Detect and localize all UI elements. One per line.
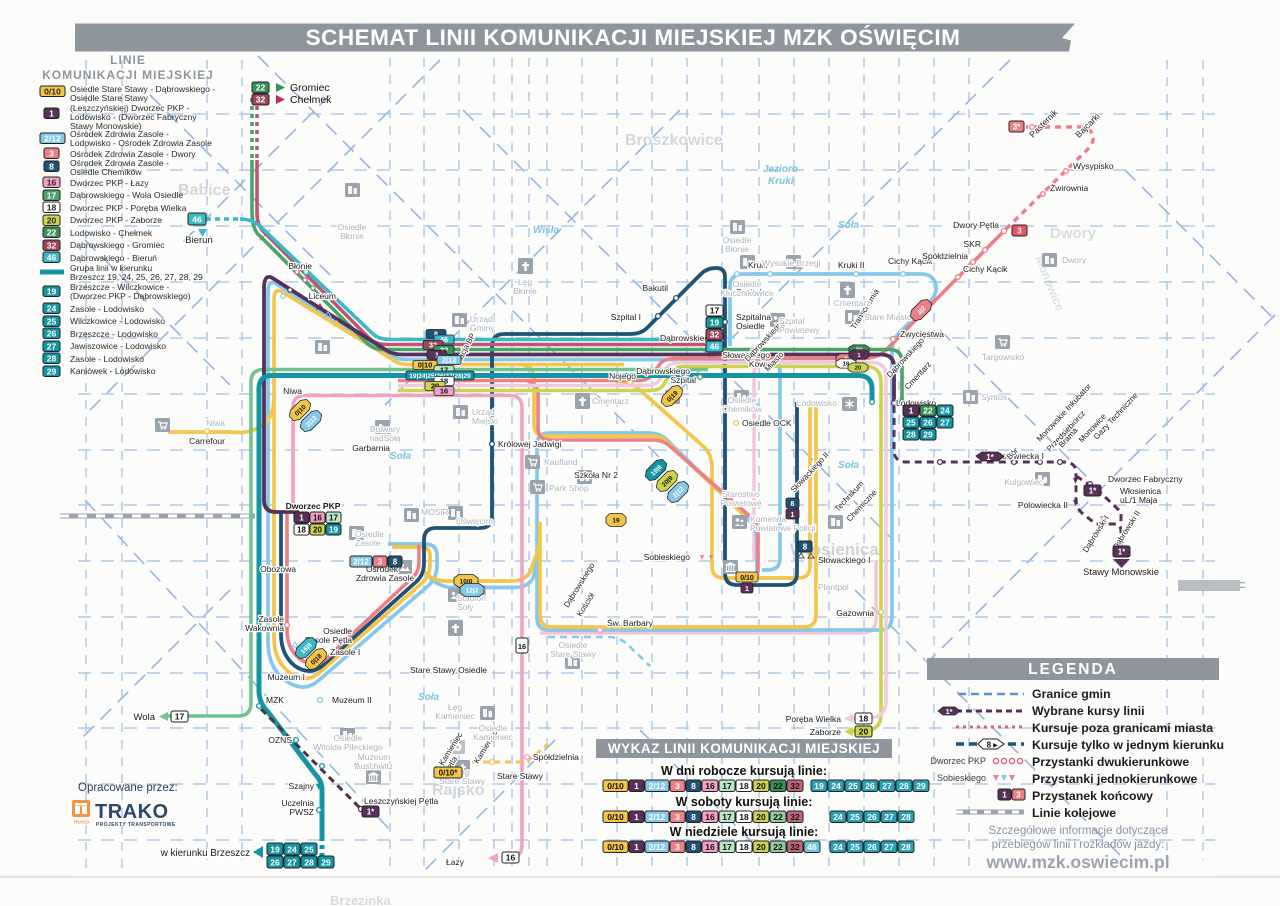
svg-text:Szajny: Szajny: [288, 781, 314, 791]
svg-text:Wysypisko: Wysypisko: [1073, 161, 1114, 171]
svg-text:Stawy Monowskie: Stawy Monowskie: [1083, 567, 1159, 578]
svg-text:19: 19: [47, 287, 57, 297]
svg-text:Dwory Pętla: Dwory Pętla: [953, 220, 999, 230]
svg-text:Dworzec PKP - Łazy: Dworzec PKP - Łazy: [70, 178, 149, 188]
svg-text:Bieruń: Bieruń: [185, 235, 212, 246]
svg-text:Wybrane kursy linii: Wybrane kursy linii: [1032, 704, 1145, 718]
svg-text:18: 18: [859, 714, 869, 724]
svg-text:www.mzk.oswiecim.pl: www.mzk.oswiecim.pl: [985, 852, 1169, 872]
svg-text:W niedziele kursują linie:: W niedziele kursują linie:: [670, 825, 819, 839]
svg-text:Liceum: Liceum: [309, 291, 336, 301]
svg-text:Jawiszowice - Lodowisko: Jawiszowice - Lodowisko: [70, 341, 166, 351]
svg-text:18: 18: [739, 781, 749, 791]
svg-text:OZNS: OZNS: [268, 735, 292, 745]
svg-text:0/10: 0/10: [607, 842, 624, 852]
svg-text:Szczegółowe informacje dotyczą: Szczegółowe informacje dotyczące: [989, 825, 1168, 837]
svg-text:Niwa: Niwa: [283, 386, 302, 396]
svg-text:Kamieniec: Kamieniec: [435, 711, 475, 721]
svg-text:Kruki: Kruki: [768, 176, 794, 187]
svg-text:18: 18: [47, 203, 57, 213]
svg-text:Targowisko: Targowisko: [982, 352, 1025, 362]
svg-text:Sobieskiego: Sobieskiego: [644, 552, 691, 562]
svg-text:8: 8: [393, 558, 398, 567]
svg-text:2/12: 2/12: [649, 781, 666, 791]
svg-text:Zwycięstwa: Zwycięstwa: [900, 329, 944, 339]
svg-text:0/10: 0/10: [607, 781, 624, 791]
svg-text:Dworzec Fabryczny: Dworzec Fabryczny: [1108, 474, 1183, 484]
svg-text:16: 16: [313, 514, 322, 523]
svg-text:16: 16: [506, 853, 516, 863]
svg-text:Auschwitz: Auschwitz: [355, 761, 393, 771]
svg-text:17: 17: [722, 781, 732, 791]
svg-text:32: 32: [710, 330, 720, 340]
svg-text:29: 29: [923, 430, 933, 440]
svg-text:Przystanki jednokierunkowe: Przystanki jednokierunkowe: [1032, 772, 1198, 786]
svg-text:Kaniówek - Lodowisko: Kaniówek - Lodowisko: [70, 366, 156, 376]
svg-text:26: 26: [867, 842, 877, 852]
svg-text:0/10: 0/10: [44, 87, 61, 97]
svg-text:2|12: 2|12: [442, 356, 457, 365]
svg-text:2/12: 2/12: [353, 558, 369, 567]
svg-text:Gromiec: Gromiec: [290, 82, 330, 94]
svg-text:0|10: 0|10: [418, 361, 433, 370]
svg-text:20: 20: [47, 216, 57, 226]
svg-text:Powiatowe: Powiatowe: [720, 498, 761, 508]
svg-text:1*: 1*: [1089, 487, 1097, 496]
svg-text:uL/1 Maja: uL/1 Maja: [1120, 495, 1158, 505]
svg-text:19: 19: [329, 526, 338, 535]
svg-text:46: 46: [47, 253, 57, 263]
svg-text:Soła: Soła: [418, 692, 440, 703]
svg-text:Polowiecka II: Polowiecka II: [1018, 500, 1068, 510]
svg-text:8: 8: [803, 543, 808, 552]
svg-text:Powiatewy: Powiatewy: [779, 325, 820, 335]
svg-text:8: 8: [691, 842, 696, 852]
svg-text:Plantpol: Plantpol: [818, 582, 849, 592]
svg-text:2/12: 2/12: [649, 842, 666, 852]
svg-text:8: 8: [691, 781, 696, 791]
svg-text:1: 1: [634, 812, 639, 822]
svg-text:25: 25: [906, 418, 916, 428]
svg-text:3: 3: [675, 812, 680, 822]
svg-text:27: 27: [940, 418, 950, 428]
svg-text:28: 28: [899, 781, 909, 791]
svg-text:1*: 1*: [986, 453, 994, 462]
svg-text:Zdrowia Zasole: Zdrowia Zasole: [356, 573, 414, 583]
svg-text:Kulgowiec: Kulgowiec: [1004, 477, 1043, 487]
svg-text:24: 24: [940, 406, 950, 416]
svg-text:0/10: 0/10: [607, 812, 624, 822]
svg-text:Kamieniec: Kamieniec: [473, 732, 513, 742]
svg-text:Park Shop: Park Shop: [549, 483, 589, 493]
svg-text:16: 16: [518, 642, 526, 651]
svg-text:19: 19: [710, 318, 720, 328]
svg-text:16: 16: [47, 178, 57, 188]
svg-text:25: 25: [47, 317, 57, 327]
svg-text:17: 17: [722, 812, 732, 822]
svg-text:Soła: Soła: [838, 460, 860, 471]
svg-text:29: 29: [321, 858, 331, 868]
svg-text:Muzeum I: Muzeum I: [268, 672, 305, 682]
svg-text:Słowackiego I: Słowackiego I: [818, 555, 870, 565]
svg-text:w kierunku Brzeszcz: w kierunku Brzeszcz: [160, 848, 250, 859]
svg-text:Gazownia: Gazownia: [836, 608, 874, 618]
svg-text:32: 32: [47, 241, 57, 251]
svg-text:8 ▸: 8 ▸: [987, 741, 999, 750]
svg-text:Zaborze: Zaborze: [810, 727, 841, 737]
svg-text:Obozowa: Obozowa: [260, 564, 296, 574]
svg-text:Linie kolejowe: Linie kolejowe: [1032, 806, 1116, 820]
svg-text:PWSZ: PWSZ: [289, 807, 314, 817]
svg-text:Dworzec PKP: Dworzec PKP: [930, 756, 986, 766]
svg-text:27: 27: [287, 858, 297, 868]
svg-text:16: 16: [705, 781, 715, 791]
svg-text:Błonie: Błonie: [288, 261, 312, 271]
svg-text:28: 28: [906, 430, 916, 440]
svg-text:KOMUNIKACJI MIEJSKIEJ: KOMUNIKACJI MIEJSKIEJ: [42, 68, 214, 82]
svg-text:Klucznikowice: Klucznikowice: [720, 288, 774, 298]
svg-text:20: 20: [756, 781, 766, 791]
svg-text:25: 25: [850, 812, 860, 822]
svg-text:24: 24: [833, 842, 843, 852]
svg-text:W soboty kursują linie:: W soboty kursują linie:: [676, 795, 813, 809]
svg-text:Błonie: Błonie: [340, 231, 364, 241]
svg-text:24: 24: [47, 304, 57, 314]
svg-text:Zasole - Lodowisko: Zasole - Lodowisko: [70, 354, 144, 364]
svg-text:26: 26: [867, 812, 877, 822]
svg-text:Lodowisko: Lodowisko: [797, 398, 837, 408]
svg-text:Chełmek: Chełmek: [290, 94, 332, 106]
svg-text:1*: 1*: [367, 808, 375, 817]
svg-text:29: 29: [47, 367, 57, 377]
svg-text:18: 18: [739, 842, 749, 852]
svg-text:Oświęcim: Oświęcim: [456, 516, 493, 526]
svg-text:20: 20: [859, 727, 869, 737]
svg-text:TRAKO: TRAKO: [95, 801, 169, 823]
svg-text:27: 27: [882, 781, 892, 791]
svg-text:26: 26: [865, 781, 875, 791]
svg-text:Osiedle OCK: Osiedle OCK: [742, 418, 792, 428]
svg-text:Wisła: Wisła: [533, 225, 559, 236]
svg-text:Carrefour: Carrefour: [189, 436, 225, 446]
svg-text:Gminy: Gminy: [470, 323, 495, 333]
svg-text:17: 17: [722, 842, 732, 852]
svg-text:Błonie: Błonie: [725, 244, 749, 254]
svg-text:32: 32: [790, 781, 800, 791]
svg-text:LEGENDA: LEGENDA: [1028, 661, 1118, 678]
svg-text:PROJEKTY TRANSPORTOWE: PROJEKTY TRANSPORTOWE: [96, 822, 176, 828]
svg-text:Osiedle Chemików: Osiedle Chemików: [70, 167, 142, 177]
svg-text:1: 1: [634, 842, 639, 852]
svg-text:3: 3: [49, 149, 54, 159]
svg-text:(Dworzec PKP - Dąbrowskiego): (Dworzec PKP - Dąbrowskiego): [70, 291, 191, 301]
svg-text:Kursuje tylko w jednym kierunk: Kursuje tylko w jednym kierunku: [1032, 738, 1224, 752]
svg-text:20: 20: [756, 842, 766, 852]
svg-text:24: 24: [831, 781, 841, 791]
svg-text:25: 25: [304, 845, 314, 855]
svg-text:Wilczkowice - Lodowisko: Wilczkowice - Lodowisko: [70, 316, 165, 326]
svg-text:Cichy Kącik: Cichy Kącik: [963, 264, 1008, 274]
svg-text:3: 3: [1016, 791, 1021, 800]
svg-text:Witolda Pileckiego: Witolda Pileckiego: [313, 742, 383, 752]
svg-text:20: 20: [855, 366, 861, 372]
svg-text:Szpital I: Szpital I: [611, 312, 641, 322]
svg-text:Kruki II: Kruki II: [838, 260, 864, 270]
svg-text:32: 32: [790, 842, 800, 852]
svg-text:Broszkowice: Broszkowice: [625, 132, 723, 149]
svg-text:Chemików: Chemików: [722, 404, 763, 414]
svg-text:1: 1: [299, 514, 304, 523]
svg-text:19: 19: [270, 845, 280, 855]
svg-text:19: 19: [814, 781, 824, 791]
svg-text:46: 46: [192, 215, 202, 225]
svg-text:22: 22: [773, 842, 783, 852]
svg-text:19: 19: [612, 518, 620, 525]
svg-text:8: 8: [49, 162, 54, 172]
svg-text:Dąbrowskiego - Gromiec: Dąbrowskiego - Gromiec: [70, 240, 165, 250]
svg-text:1: 1: [909, 406, 914, 416]
svg-text:Łazy: Łazy: [446, 857, 465, 867]
svg-text:3: 3: [378, 558, 383, 567]
svg-text:26: 26: [923, 418, 933, 428]
svg-text:Brzezinka: Brzezinka: [330, 893, 391, 906]
svg-text:1: 1: [791, 512, 795, 519]
svg-text:SKR: SKR: [964, 239, 981, 249]
svg-text:Cmentarz: Cmentarz: [834, 298, 871, 308]
svg-text:Niwa: Niwa: [206, 418, 225, 428]
svg-text:Kursuje poza granicami miasta: Kursuje poza granicami miasta: [1032, 721, 1213, 735]
svg-text:Dworzec PKP - Zaborze: Dworzec PKP - Zaborze: [70, 215, 162, 225]
svg-text:22: 22: [773, 781, 783, 791]
svg-text:Brzeszcz 19, 24, 25, 26, 27, 2: Brzeszcz 19, 24, 25, 26, 27, 28, 29: [70, 272, 203, 282]
svg-text:32: 32: [256, 95, 266, 105]
svg-text:2/12: 2/12: [649, 812, 666, 822]
svg-text:Brzeszcze - Lodowisko: Brzeszcze - Lodowisko: [70, 329, 158, 339]
svg-text:Nojego: Nojego: [609, 371, 636, 381]
svg-text:Opracowane przez:: Opracowane przez:: [78, 782, 178, 794]
svg-text:Garbarnia: Garbarnia: [352, 443, 390, 453]
svg-text:18: 18: [739, 812, 749, 822]
svg-text:Lodowisko - Ośrodek Zdrowia Za: Lodowisko - Ośrodek Zdrowia Zasole: [70, 138, 212, 148]
svg-text:Kaufland: Kaufland: [544, 457, 578, 467]
svg-text:16: 16: [440, 387, 448, 396]
svg-text:LINIE: LINIE: [110, 53, 146, 67]
svg-text:3: 3: [675, 842, 680, 852]
svg-text:Błonie: Błonie: [513, 286, 537, 296]
svg-text:Przystanki dwukierunkowe: Przystanki dwukierunkowe: [1032, 755, 1189, 769]
svg-text:Miejski: Miejski: [472, 416, 498, 426]
svg-text:Babice: Babice: [178, 182, 231, 199]
svg-text:Św. Barbary: Św. Barbary: [607, 617, 654, 628]
svg-text:Sobieskiego: Sobieskiego: [937, 773, 986, 783]
svg-text:Stare Miasto: Stare Miasto: [864, 312, 912, 322]
svg-text:Dwory: Dwory: [1062, 255, 1087, 265]
svg-text:18: 18: [297, 526, 306, 535]
svg-text:przebiegów linii i rozkładów j: przebiegów linii i rozkładów jazdy:: [992, 839, 1165, 851]
svg-text:1: 1: [634, 781, 639, 791]
svg-text:Spółdzielnia: Spółdzielnia: [533, 752, 579, 762]
svg-text:Stare Stawy: Stare Stawy: [550, 649, 597, 659]
svg-text:Cmentarz: Cmentarz: [592, 396, 629, 406]
svg-text:20: 20: [756, 812, 766, 822]
svg-text:Zasole: Zasole: [355, 538, 381, 548]
svg-text:SCHEMAT LINII KOMUNIKACJI MIEJ: SCHEMAT LINII KOMUNIKACJI MIEJSKIEJ MZK …: [306, 25, 961, 50]
svg-text:12|2: 12|2: [466, 588, 479, 595]
svg-text:Osiedle: Osiedle: [736, 321, 765, 331]
svg-text:Bakutil: Bakutil: [642, 283, 668, 293]
svg-text:Szkoła Nr 2: Szkoła Nr 2: [574, 470, 618, 480]
svg-text:28: 28: [47, 354, 57, 364]
svg-text:Dworzec PKP - Poręba Wielka: Dworzec PKP - Poręba Wielka: [70, 203, 187, 213]
svg-text:28: 28: [304, 858, 314, 868]
svg-text:3*: 3*: [1013, 123, 1021, 132]
svg-text:Leszczyńskiej Pętla: Leszczyńskiej Pętla: [364, 796, 438, 806]
svg-text:27: 27: [47, 342, 57, 352]
svg-text:Królowej Jadwigi: Królowej Jadwigi: [498, 439, 561, 449]
svg-text:29: 29: [916, 781, 926, 791]
svg-text:Przystanek końcowy: Przystanek końcowy: [1032, 789, 1153, 803]
svg-text:MOSiR: MOSiR: [421, 507, 448, 517]
svg-text:22: 22: [923, 406, 933, 416]
svg-text:25: 25: [848, 781, 858, 791]
svg-text:W dni robocze kursują linie:: W dni robocze kursują linie:: [661, 764, 827, 778]
svg-text:Szpital: Szpital: [670, 375, 696, 385]
svg-text:Poręba Wielka: Poręba Wielka: [786, 714, 842, 724]
svg-text:26: 26: [270, 858, 280, 868]
svg-text:8: 8: [791, 501, 795, 508]
svg-text:28: 28: [901, 842, 911, 852]
svg-text:8: 8: [691, 812, 696, 822]
svg-text:1*: 1*: [1118, 548, 1126, 557]
svg-text:22: 22: [256, 83, 266, 93]
svg-text:20: 20: [313, 526, 322, 535]
svg-text:1: 1: [1002, 791, 1007, 800]
svg-text:Zasole - Lodowisko: Zasole - Lodowisko: [70, 304, 144, 314]
svg-text:25: 25: [850, 842, 860, 852]
svg-text:3: 3: [675, 781, 680, 791]
svg-text:Granice gmin: Granice gmin: [1032, 687, 1111, 701]
svg-text:Stare Stawy Osiedle: Stare Stawy Osiedle: [410, 665, 487, 675]
svg-text:Stare Stawy: Stare Stawy: [497, 771, 544, 781]
svg-text:1: 1: [745, 586, 749, 593]
svg-text:Spółdzielnia: Spółdzielnia: [922, 251, 968, 261]
svg-text:Dąbrowskiego - Bieruń: Dąbrowskiego - Bieruń: [70, 253, 157, 263]
svg-text:24: 24: [287, 845, 297, 855]
svg-text:WYKAZ LINII KOMUNIKACJI MIEJSK: WYKAZ LINII KOMUNIKACJI MIEJSKIEJ: [608, 741, 880, 756]
svg-text:27: 27: [884, 842, 894, 852]
svg-text:Dąbrowskiego - Wola Osiedle: Dąbrowskiego - Wola Osiedle: [70, 190, 183, 200]
svg-text:17: 17: [710, 306, 720, 316]
svg-text:Zasole I: Zasole I: [330, 647, 360, 657]
svg-text:1*: 1*: [945, 707, 952, 716]
svg-text:22: 22: [773, 812, 783, 822]
svg-text:MZK: MZK: [266, 695, 284, 705]
svg-text:17: 17: [175, 712, 185, 722]
svg-text:Dwory: Dwory: [1050, 225, 1097, 242]
svg-text:26: 26: [47, 329, 57, 339]
svg-text:17: 17: [47, 191, 57, 201]
svg-text:17: 17: [329, 514, 338, 523]
svg-text:3: 3: [1017, 227, 1022, 236]
svg-text:24: 24: [833, 812, 843, 822]
svg-text:2/12: 2/12: [44, 134, 61, 144]
svg-text:Wysokie Brzegi: Wysokie Brzegi: [762, 258, 821, 268]
svg-text:Osiedle Stare Stawy: Osiedle Stare Stawy: [70, 93, 149, 103]
svg-text:Syntos: Syntos: [981, 392, 1007, 402]
svg-text:Soły: Soły: [457, 602, 474, 612]
svg-text:22: 22: [47, 228, 57, 238]
svg-text:Soła: Soła: [838, 220, 860, 231]
svg-text:27: 27: [884, 812, 894, 822]
svg-text:16: 16: [705, 812, 715, 822]
svg-text:Wola: Wola: [134, 712, 156, 723]
svg-text:32: 32: [790, 812, 800, 822]
svg-text:Muzeum II: Muzeum II: [332, 695, 372, 705]
svg-text:46: 46: [807, 842, 817, 852]
svg-text:Dworzec PKP: Dworzec PKP: [286, 501, 341, 511]
svg-text:46: 46: [710, 342, 720, 352]
svg-text:0/10: 0/10: [740, 575, 754, 582]
svg-text:Żwirownia: Żwirownia: [1050, 183, 1089, 193]
svg-text:0/10*: 0/10*: [439, 769, 459, 778]
svg-text:Jezioro: Jezioro: [763, 164, 798, 175]
svg-text:nadSołą: nadSołą: [369, 433, 400, 443]
svg-text:Powiatowe Policji: Powiatowe Policji: [750, 523, 816, 533]
svg-text:28: 28: [901, 812, 911, 822]
svg-text:Lodowisko - Chełmek: Lodowisko - Chełmek: [70, 228, 153, 238]
svg-text:1: 1: [49, 109, 54, 119]
svg-text:Wakownia: Wakownia: [245, 623, 284, 633]
svg-text:16: 16: [705, 842, 715, 852]
svg-text:TRAKO: TRAKO: [73, 820, 89, 825]
svg-text:Soła: Soła: [390, 451, 412, 462]
